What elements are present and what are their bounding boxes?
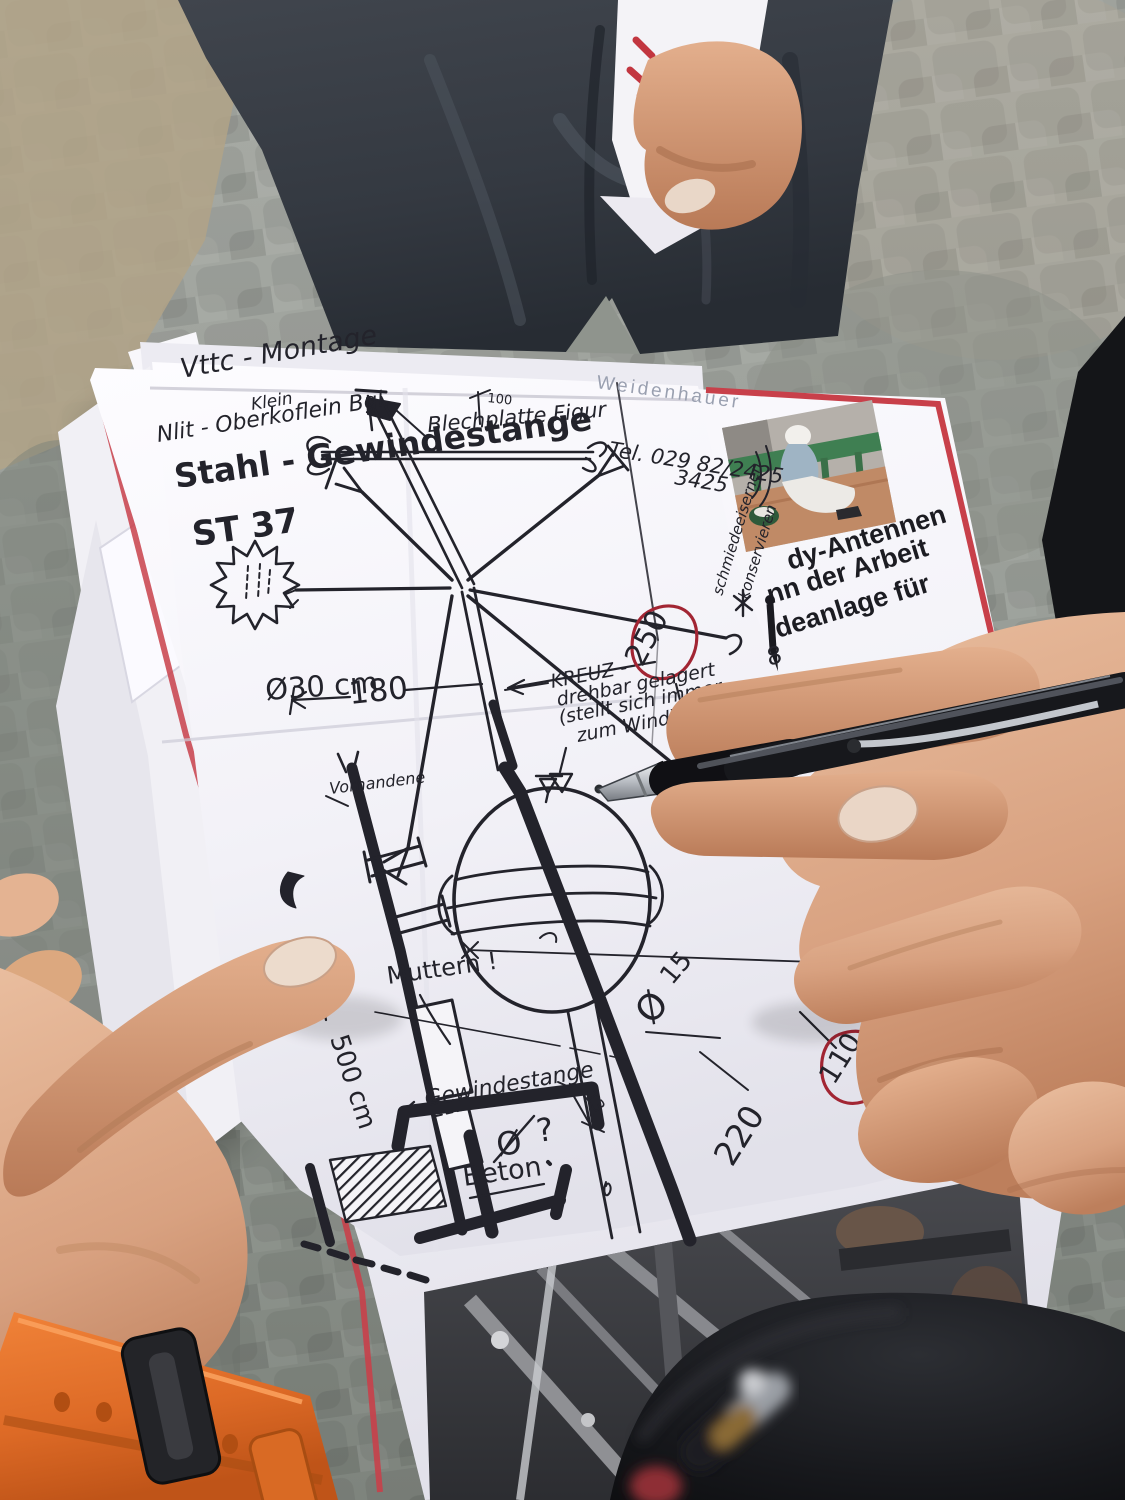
- dim-100: 100: [487, 391, 513, 409]
- right-thumb: [651, 770, 1008, 860]
- photo-of-sketch-discussion: dy-Antennen nn der Arbeit deanlage für 4…: [0, 0, 1125, 1500]
- bystander-hand: [634, 41, 802, 229]
